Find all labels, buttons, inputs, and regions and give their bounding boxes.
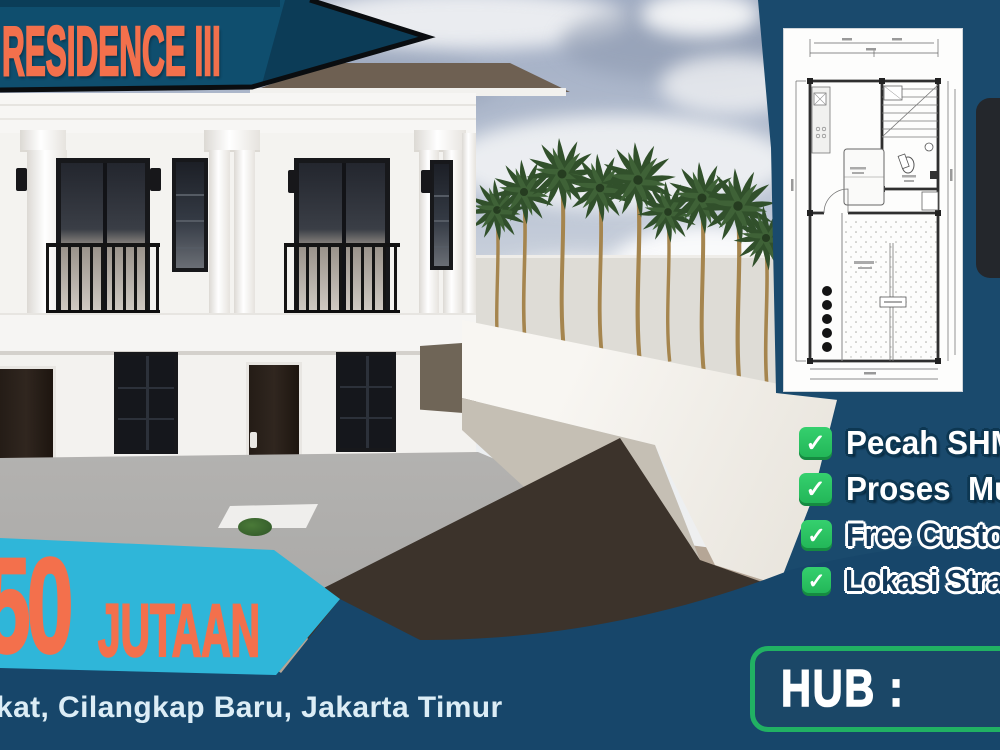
- feature-item: ✓ Lokasi Stra: [802, 563, 1000, 599]
- feature-label: Proses Mu: [846, 470, 1000, 508]
- feature-item: ✓ Free Custo: [801, 517, 1000, 554]
- feature-item: ✓ Pecah SHM: [799, 424, 1000, 462]
- feature-item: ✓ Proses Mu: [799, 470, 1000, 508]
- edge-graphic: [976, 98, 1000, 278]
- project-title: RESIDENCE III: [2, 16, 196, 86]
- feature-label: Pecah SHM: [846, 424, 1000, 462]
- check-icon: ✓: [799, 427, 832, 460]
- feature-label: Lokasi Stra: [845, 563, 1000, 599]
- check-icon: ✓: [801, 520, 832, 551]
- price: 50 JUTAAN: [0, 544, 393, 662]
- price-unit: JUTAAN: [98, 600, 260, 662]
- floor-plan-drawing: [784, 29, 962, 391]
- contact-box: HUB :: [750, 646, 1000, 732]
- flyer-root: 50 JUTAAN kat, Cilangkap Baru, Jakarta T…: [0, 0, 1000, 750]
- check-icon: ✓: [802, 567, 831, 596]
- contact-label: HUB :: [781, 659, 905, 719]
- floor-plan-card: [783, 28, 963, 392]
- feature-label: Free Custo: [846, 517, 1000, 554]
- check-icon: ✓: [799, 473, 832, 506]
- address-line: kat, Cilangkap Baru, Jakarta Timur: [0, 691, 503, 725]
- price-amount: 50: [0, 550, 70, 662]
